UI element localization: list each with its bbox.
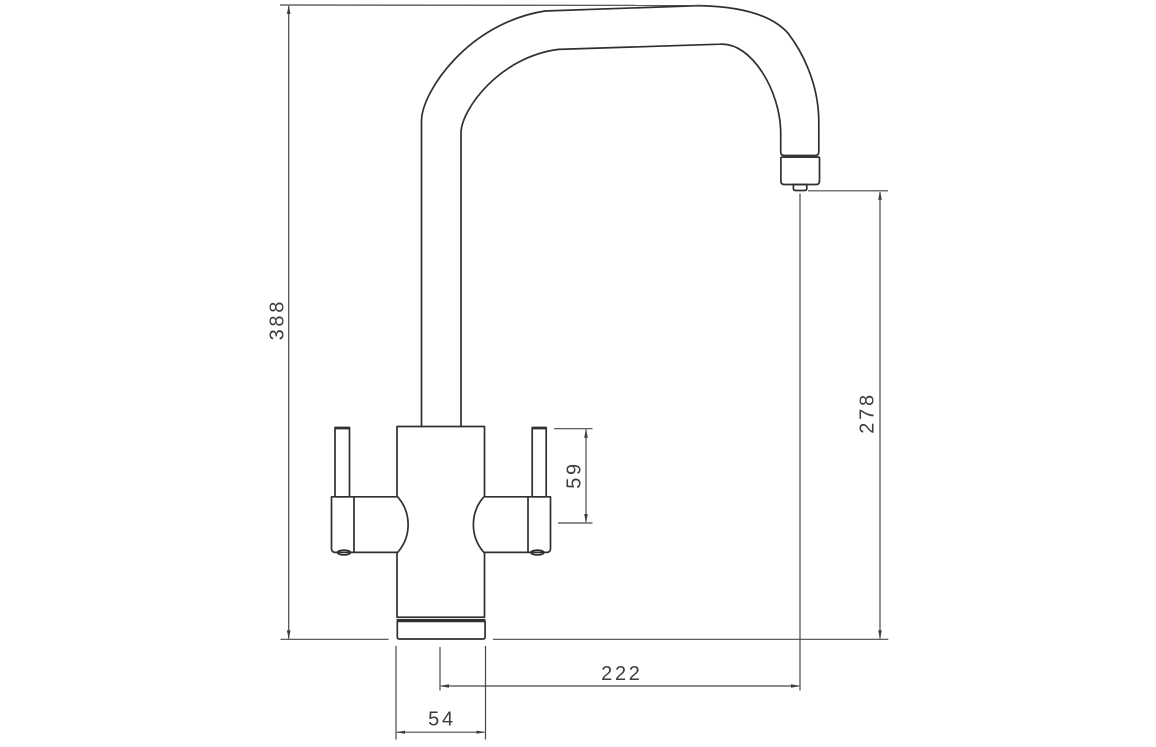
svg-text:388: 388 [266,299,288,340]
svg-text:59: 59 [563,461,585,489]
svg-text:278: 278 [856,392,878,433]
svg-text:222: 222 [601,663,642,685]
svg-text:54: 54 [428,709,456,731]
